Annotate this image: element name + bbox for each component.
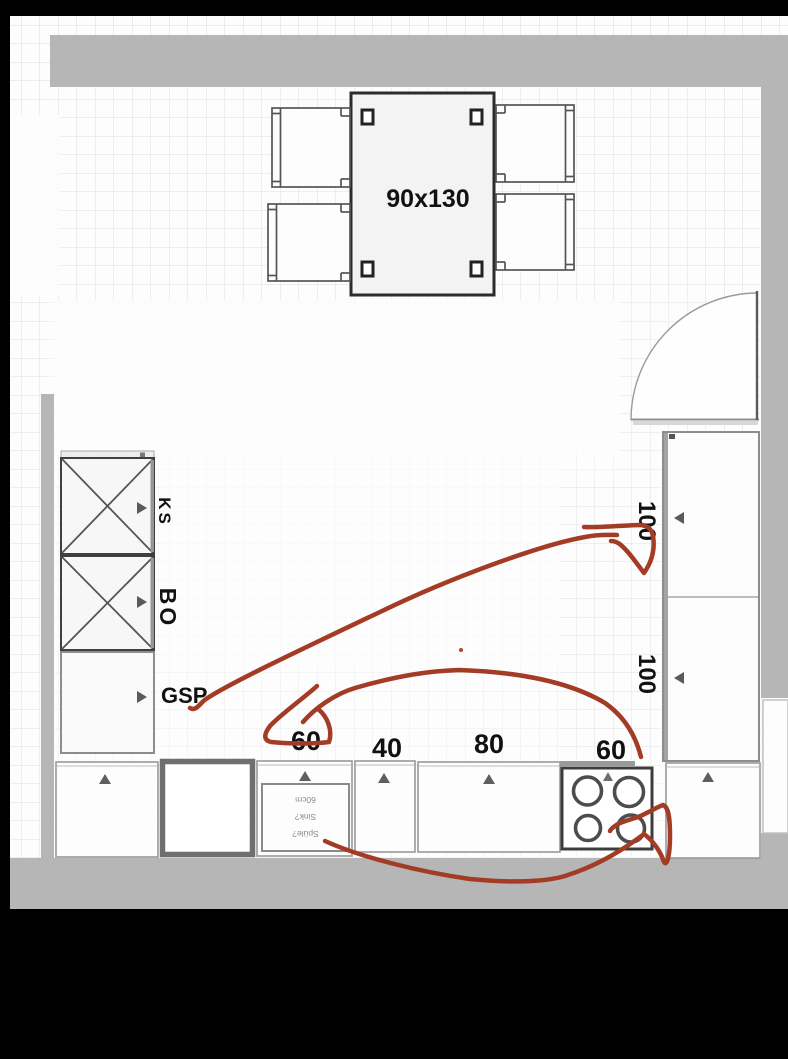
svg-text:80: 80	[474, 729, 504, 759]
svg-text:BO: BO	[155, 588, 181, 629]
svg-text:100: 100	[633, 501, 660, 541]
svg-text:100: 100	[633, 654, 660, 694]
svg-text:60: 60	[596, 735, 626, 765]
svg-text:KS: KS	[155, 497, 174, 527]
svg-text:90x130: 90x130	[386, 185, 469, 213]
svg-text:Sink?: Sink?	[295, 812, 317, 822]
svg-text:Spüle?: Spüle?	[292, 829, 319, 839]
svg-text:60cm: 60cm	[295, 795, 316, 805]
svg-text:40: 40	[372, 733, 402, 763]
